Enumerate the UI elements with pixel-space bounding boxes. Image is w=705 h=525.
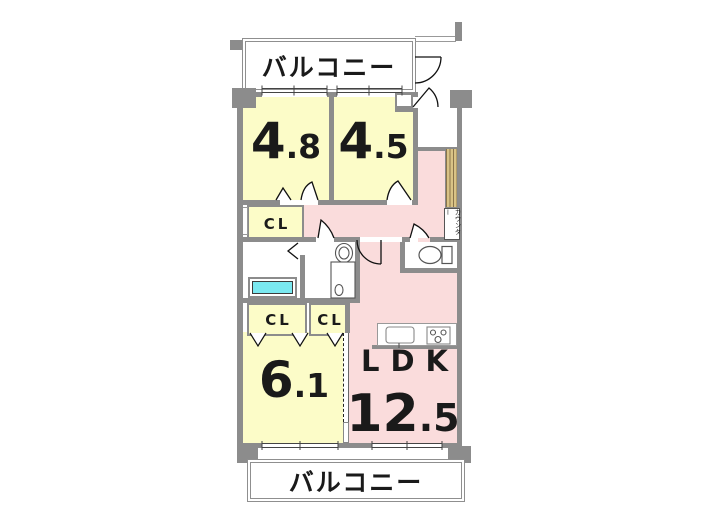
bedroom2-size-int: 4 [338,116,373,166]
wall-segment [355,237,360,303]
exterior-corridor-line [415,36,456,42]
closet-right-label: CL [314,311,344,329]
balcony-top-label: バルコニー [245,41,413,90]
shoe-cabinet-louver [445,148,458,208]
balcony-wall-stub [230,40,242,50]
wall-segment [395,108,418,112]
wall-segment [345,303,350,333]
closet-hall-label: CL [261,215,291,233]
bedroom1-size-int: 4 [251,116,286,166]
closet-left-label: CL [262,311,292,329]
wall-segment [400,268,462,273]
bedroom3-size-dec: .1 [294,369,330,402]
hallway-center [302,205,418,237]
wall-segment [237,298,360,303]
balcony-bottom: バルコニー [247,459,465,502]
exterior-wall-stub [455,22,462,41]
wall-segment [413,108,418,200]
wall-segment [318,200,387,205]
wall-segment [237,237,316,242]
counter-label: カウンター [442,209,462,239]
wall-segment [412,200,418,205]
balcony-top: バルコニー [242,38,416,93]
ldk-size-int: 12 [346,388,418,440]
counter-box: カウンター [444,208,460,240]
bedroom1-size: 4.8 [243,116,329,166]
pillar [232,88,256,108]
closet-left: CL [247,303,307,336]
ldk-size: 12.5 [346,388,460,440]
bathtub-water [252,281,293,294]
bedroom3-size-int: 6 [259,355,294,405]
toilet-room [405,242,457,268]
balcony-bottom-label: バルコニー [250,462,462,499]
bedroom3-size: 6.1 [243,355,345,405]
kitchen-counter [377,323,457,346]
wall-notch [395,93,413,108]
bedroom2-size: 4.5 [334,116,413,166]
ldk-name: LDK [352,346,457,376]
bedroom2-size-dec: .5 [373,130,409,163]
wall-segment [300,255,305,298]
pillar [450,90,472,108]
hallway-east [418,151,445,242]
closet-right: CL [309,303,349,336]
ldk-size-dec: .5 [419,399,460,437]
wall-segment [237,200,280,205]
floor-plan: バルコニー CL CL CL [0,0,705,525]
bedroom1-size-dec: .8 [286,130,322,163]
